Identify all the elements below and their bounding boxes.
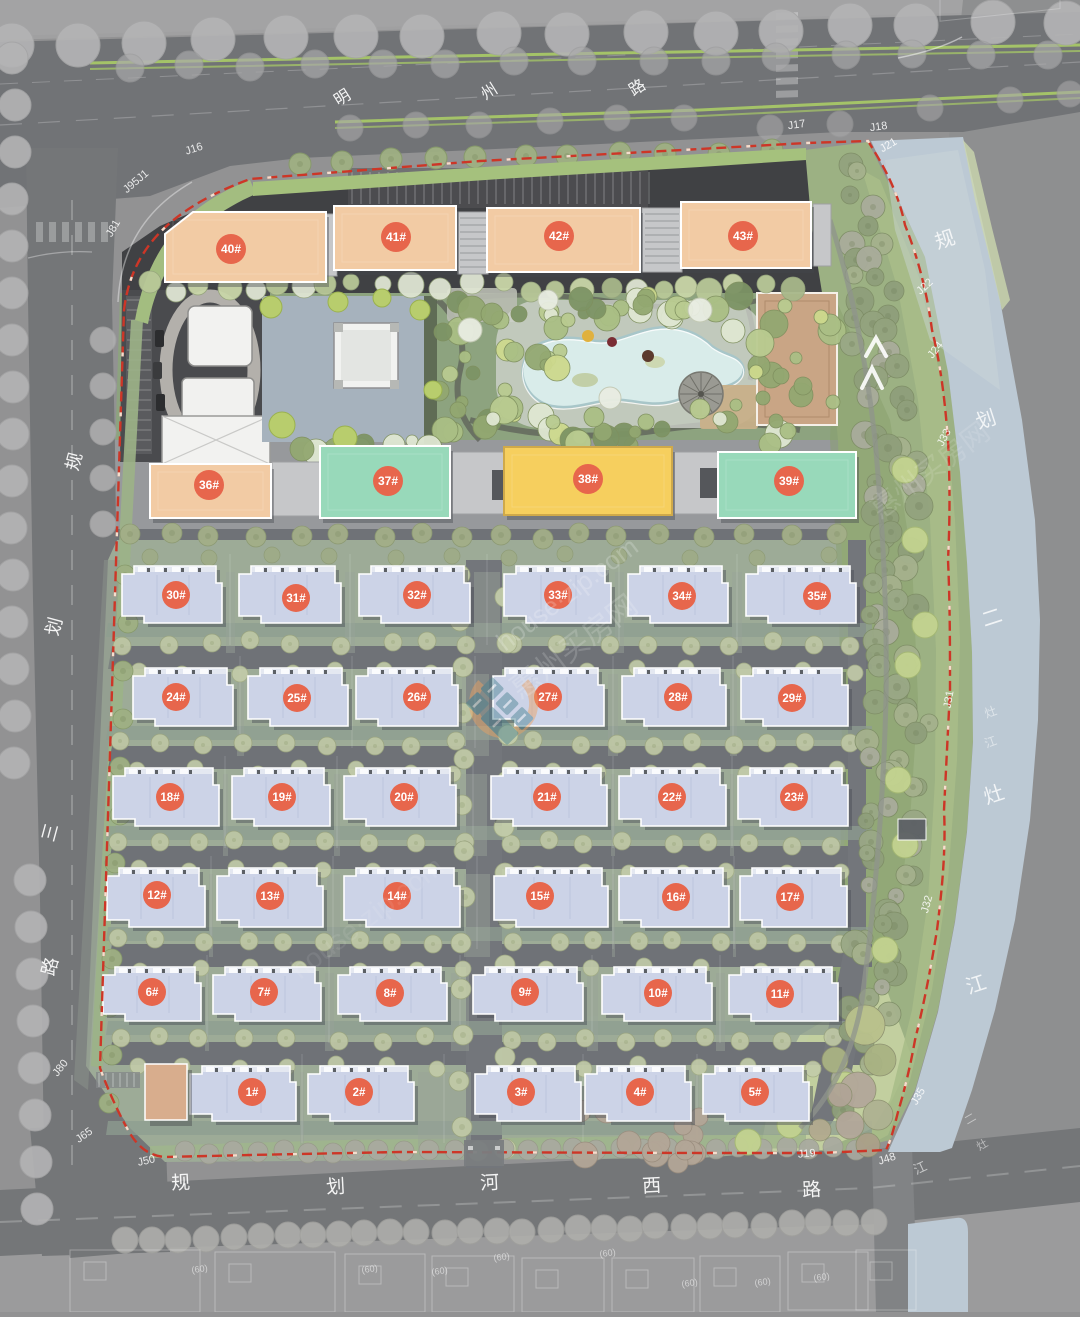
svg-text:15#: 15# bbox=[530, 891, 550, 903]
svg-text:24#: 24# bbox=[166, 692, 186, 704]
svg-text:6#: 6# bbox=[146, 987, 159, 999]
svg-text:12#: 12# bbox=[147, 890, 167, 902]
svg-text:32#: 32# bbox=[407, 590, 427, 602]
svg-text:42#: 42# bbox=[549, 229, 569, 243]
svg-text:10#: 10# bbox=[648, 988, 668, 1000]
svg-text:7#: 7# bbox=[258, 987, 271, 999]
svg-text:38#: 38# bbox=[578, 472, 598, 486]
svg-text:19#: 19# bbox=[272, 792, 292, 804]
svg-text:35#: 35# bbox=[807, 591, 827, 603]
svg-text:21#: 21# bbox=[537, 792, 557, 804]
svg-text:路: 路 bbox=[802, 1179, 822, 1202]
svg-text:5#: 5# bbox=[749, 1087, 762, 1099]
svg-text:8#: 8# bbox=[384, 988, 397, 1000]
svg-text:J18: J18 bbox=[869, 120, 888, 134]
svg-text:27#: 27# bbox=[538, 692, 558, 704]
svg-text:36#: 36# bbox=[199, 478, 219, 492]
svg-text:39#: 39# bbox=[779, 474, 799, 488]
svg-text:J19: J19 bbox=[797, 1147, 816, 1161]
svg-text:34#: 34# bbox=[672, 591, 692, 603]
svg-text:划: 划 bbox=[326, 1176, 346, 1199]
svg-text:18#: 18# bbox=[160, 792, 180, 804]
svg-text:29#: 29# bbox=[782, 693, 802, 705]
svg-text:西: 西 bbox=[642, 1176, 662, 1198]
svg-text:43#: 43# bbox=[733, 229, 753, 243]
svg-text:30#: 30# bbox=[166, 590, 186, 602]
svg-text:22#: 22# bbox=[662, 792, 682, 804]
svg-text:20#: 20# bbox=[394, 792, 414, 804]
svg-text:17#: 17# bbox=[780, 892, 800, 904]
svg-text:28#: 28# bbox=[668, 692, 688, 704]
svg-text:26#: 26# bbox=[407, 692, 427, 704]
svg-text:13#: 13# bbox=[260, 891, 280, 903]
svg-text:41#: 41# bbox=[386, 230, 406, 244]
svg-text:16#: 16# bbox=[666, 892, 686, 904]
svg-text:9#: 9# bbox=[519, 987, 532, 999]
svg-text:J17: J17 bbox=[787, 118, 806, 132]
svg-text:1#: 1# bbox=[246, 1087, 259, 1099]
svg-text:规: 规 bbox=[171, 1172, 191, 1195]
svg-text:23#: 23# bbox=[784, 792, 804, 804]
svg-text:2#: 2# bbox=[353, 1087, 366, 1099]
svg-text:31#: 31# bbox=[286, 593, 306, 605]
svg-text:40#: 40# bbox=[221, 242, 241, 256]
svg-text:37#: 37# bbox=[378, 474, 398, 488]
svg-text:11#: 11# bbox=[771, 989, 790, 1001]
svg-text:4#: 4# bbox=[634, 1087, 647, 1099]
svg-text:河: 河 bbox=[480, 1172, 500, 1195]
svg-text:25#: 25# bbox=[287, 693, 307, 705]
svg-text:3#: 3# bbox=[515, 1087, 528, 1099]
